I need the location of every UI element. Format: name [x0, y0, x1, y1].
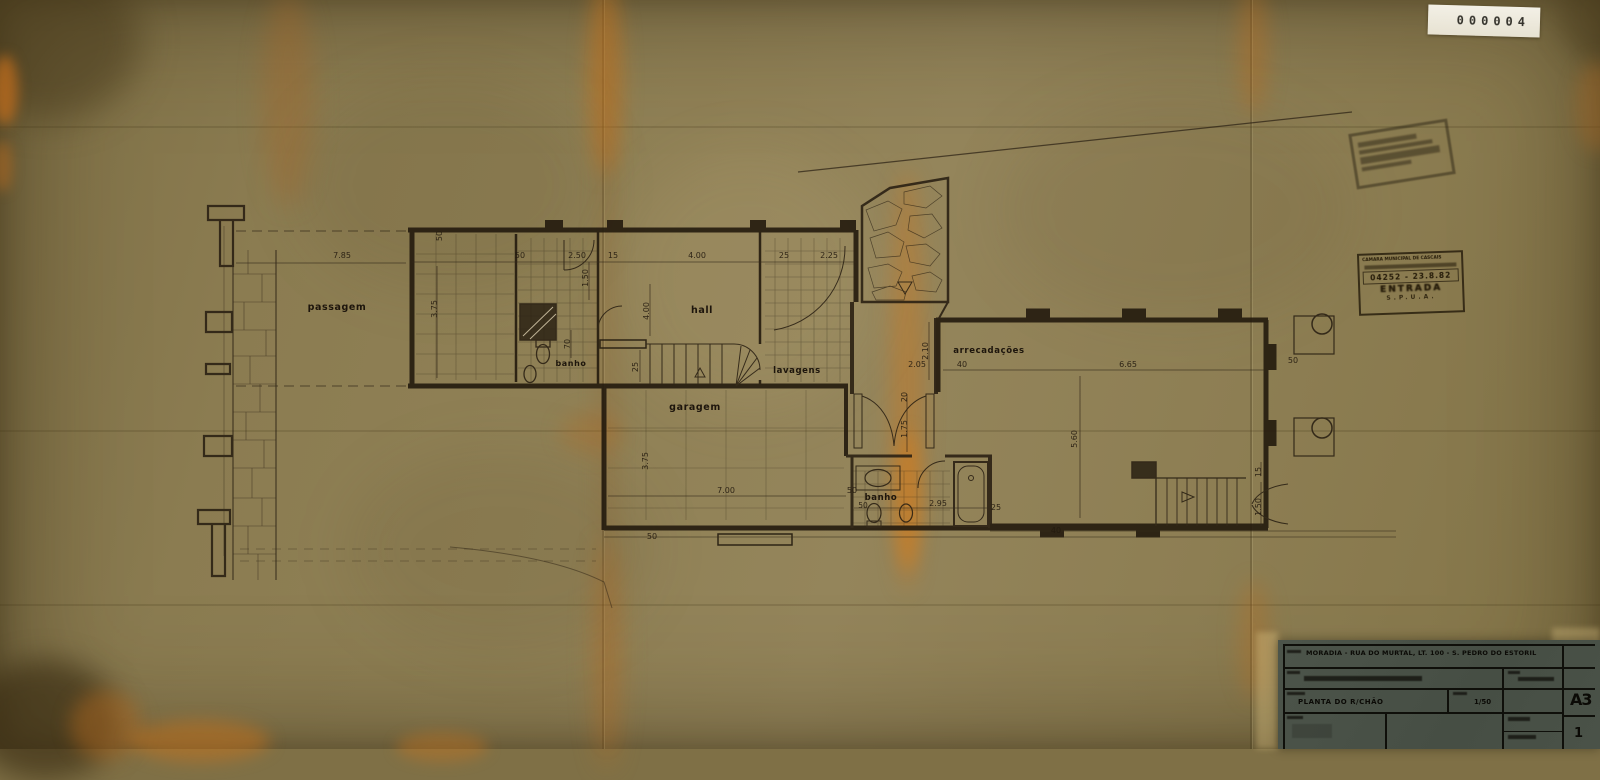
door-arc — [862, 396, 926, 446]
field-label-smudge — [1287, 650, 1301, 653]
title-block-line — [1385, 712, 1387, 749]
dimension-label: 6.65 — [1119, 360, 1137, 369]
room-label: arrecadações — [953, 346, 1024, 356]
sheet-number: 1 — [1574, 726, 1583, 741]
dimension-label: 50 — [847, 486, 857, 495]
sheet-format: A3 — [1570, 690, 1592, 709]
masonry-area — [862, 178, 948, 302]
dimension-label: 4.00 — [642, 302, 651, 320]
title-block-line — [1283, 712, 1562, 714]
dimension-label: 50 — [858, 501, 868, 510]
field-label-smudge — [1453, 692, 1467, 695]
toilet-tank-symbol — [536, 340, 550, 347]
dimension-label: 70 — [563, 339, 572, 349]
dimension-label: 25 — [991, 503, 1001, 512]
room-label: lavagens — [773, 366, 821, 376]
dimension-label: 2.25 — [820, 251, 838, 260]
stair-direction-arrow — [695, 368, 705, 377]
dimension-label: 50 — [1288, 356, 1298, 365]
title-block-line — [1283, 667, 1595, 669]
exterior-pads — [1294, 314, 1334, 456]
municipal-entry-stamp: CÂMARA MUNICIPAL DE CASCAIS 04252 - 23.8… — [1357, 250, 1465, 316]
archive-number-sticker: 000004 — [1428, 4, 1541, 37]
dimension-label: 5.60 — [1070, 430, 1079, 448]
dimension-label: 1.50 — [581, 269, 590, 287]
driveway-curve — [450, 547, 612, 608]
hall-stairs — [646, 344, 760, 386]
project-title: MORADIA - RUA DO MURTAL, LT. 100 - S. PE… — [1306, 649, 1536, 657]
dimension-label: 2.10 — [921, 342, 930, 360]
dimension-label: 1.75 — [900, 420, 909, 438]
stone-paving-pattern — [233, 250, 276, 580]
room-label: hall — [691, 305, 713, 316]
dimension-label: 15 — [1254, 467, 1263, 477]
field-label-smudge — [1287, 716, 1303, 719]
dimension-lines — [236, 262, 1264, 526]
title-block-line — [1562, 715, 1595, 717]
dimension-label: 50 — [435, 231, 444, 241]
archive-number: 000004 — [1456, 13, 1530, 29]
paving-strip-edges — [233, 250, 276, 580]
dimension-label: 50 — [515, 251, 525, 260]
bathroom2 — [846, 456, 992, 528]
room-label: passagem — [308, 302, 367, 313]
stamp-ghost-smudge — [1292, 724, 1332, 738]
field-label-smudge — [1287, 692, 1305, 695]
dimension-label: 3.75 — [641, 452, 650, 470]
title-block-line — [1502, 667, 1504, 749]
level-marker-triangle — [898, 282, 912, 294]
field-label-smudge — [1508, 717, 1530, 721]
rubble-stone-pattern — [866, 186, 942, 300]
dimension-label: 1.50 — [1254, 498, 1263, 516]
drawing-title: PLANTA DO R/CHÃO — [1298, 698, 1383, 706]
dashed-guideline — [240, 549, 596, 561]
dimension-label: 40 — [957, 360, 967, 369]
toilet-symbol — [867, 504, 881, 523]
title-block-line — [1502, 731, 1562, 732]
dimension-label: 2.05 — [908, 360, 926, 369]
field-label-smudge — [1508, 735, 1536, 739]
stair-direction-arrow — [1182, 492, 1194, 502]
dimension-label: 20 — [900, 392, 909, 402]
title-block: MORADIA - RUA DO MURTAL, LT. 100 - S. PE… — [1278, 640, 1600, 749]
owner-name-smudge — [1304, 676, 1422, 681]
title-block-line — [1283, 644, 1595, 646]
stamp-header: CÂMARA MUNICIPAL DE CASCAIS — [1362, 254, 1459, 262]
drawing-scale: 1/50 — [1474, 698, 1491, 706]
dimension-label: 2.95 — [929, 499, 947, 508]
garage-threshold — [718, 534, 792, 545]
door-arc — [598, 306, 622, 330]
dimension-label: 7.85 — [333, 251, 351, 260]
plan-linework — [198, 112, 1396, 608]
title-block-line — [1562, 644, 1564, 749]
column-symbol — [1312, 314, 1332, 334]
room-label: garagem — [669, 402, 721, 413]
boundary-diagonal-line — [798, 112, 1352, 172]
title-block-line — [1447, 688, 1449, 712]
title-block-line — [1283, 688, 1595, 690]
column-symbol — [1312, 418, 1332, 438]
dimension-label: 40 — [1051, 526, 1061, 535]
title-block-line — [1283, 644, 1285, 749]
dimension-label: 50 — [647, 532, 657, 541]
room-label: banho — [865, 493, 898, 503]
field-label-smudge — [1508, 671, 1520, 674]
dimension-label: 25 — [779, 251, 789, 260]
gate-piers — [198, 206, 244, 576]
floor-plan-drawing: passagem banho hall lavagens garagem arr… — [0, 0, 1600, 749]
dimension-label: 15 — [608, 251, 618, 260]
dimension-label: 2.50 — [568, 251, 586, 260]
dimension-label: 25 — [631, 362, 640, 372]
room-label: banho — [555, 359, 586, 368]
dimension-label: 4.00 — [688, 251, 706, 260]
field-value-smudge — [1518, 677, 1554, 681]
dimension-label: 3.75 — [430, 300, 439, 318]
field-label-smudge — [1287, 671, 1300, 674]
dimension-label: 7.00 — [717, 486, 735, 495]
tile-grids — [416, 234, 950, 526]
bidet-symbol — [900, 504, 913, 522]
